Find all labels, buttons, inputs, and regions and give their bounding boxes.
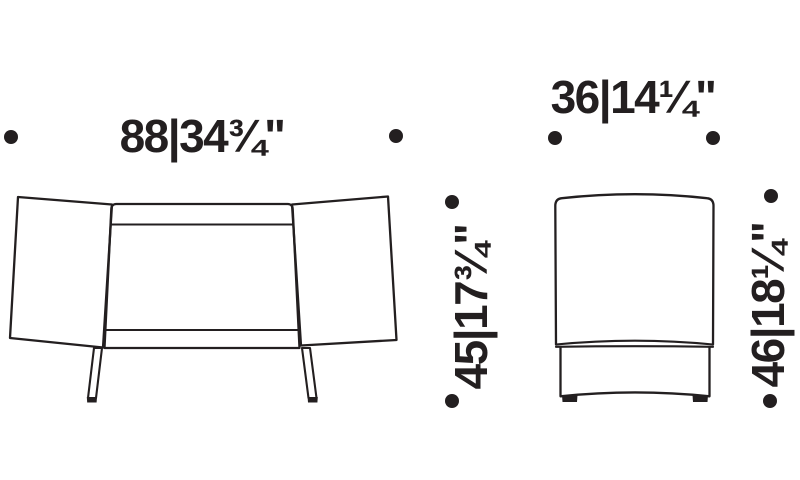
dimension-dot-side-height-top bbox=[764, 189, 778, 203]
front-left-leg bbox=[88, 348, 102, 398]
dimension-endpoint-dots bbox=[4, 129, 778, 408]
front-left-foot bbox=[87, 397, 97, 403]
side-body-base-seam bbox=[556, 346, 713, 347]
side-body-bottom-arc bbox=[556, 341, 713, 345]
front-right-panel bbox=[292, 197, 397, 346]
dimension-diagram: 88|34¾" 36|14¼" 45|17¾" 46|18¼" bbox=[0, 0, 800, 480]
front-right-leg bbox=[302, 348, 317, 398]
dimension-dot-side-height-bottom bbox=[763, 394, 777, 408]
front-center-frame bbox=[105, 204, 300, 348]
side-base-outline bbox=[561, 348, 710, 397]
dimension-dot-front-width-right bbox=[389, 129, 403, 143]
front-view-drawing bbox=[10, 197, 397, 403]
dimension-label-front-width: 88|34¾" bbox=[120, 113, 285, 159]
dimension-label-front-height: 45|17¾" bbox=[448, 225, 494, 390]
side-body-outline bbox=[555, 194, 713, 344]
dimension-dot-front-height-top bbox=[445, 195, 459, 209]
dimension-dot-side-depth-right bbox=[706, 131, 720, 145]
dimension-label-side-height: 46|18¼" bbox=[745, 223, 791, 388]
dimension-dot-side-depth-left bbox=[548, 131, 562, 145]
front-left-panel bbox=[10, 197, 112, 348]
side-left-foot bbox=[562, 395, 578, 402]
side-right-foot bbox=[693, 395, 709, 402]
dimension-dot-front-width-left bbox=[4, 130, 18, 144]
side-view-drawing bbox=[555, 194, 713, 402]
front-right-foot bbox=[308, 397, 318, 403]
dimension-label-side-depth: 36|14¼" bbox=[551, 74, 716, 120]
dimension-dot-front-height-bottom bbox=[445, 394, 459, 408]
